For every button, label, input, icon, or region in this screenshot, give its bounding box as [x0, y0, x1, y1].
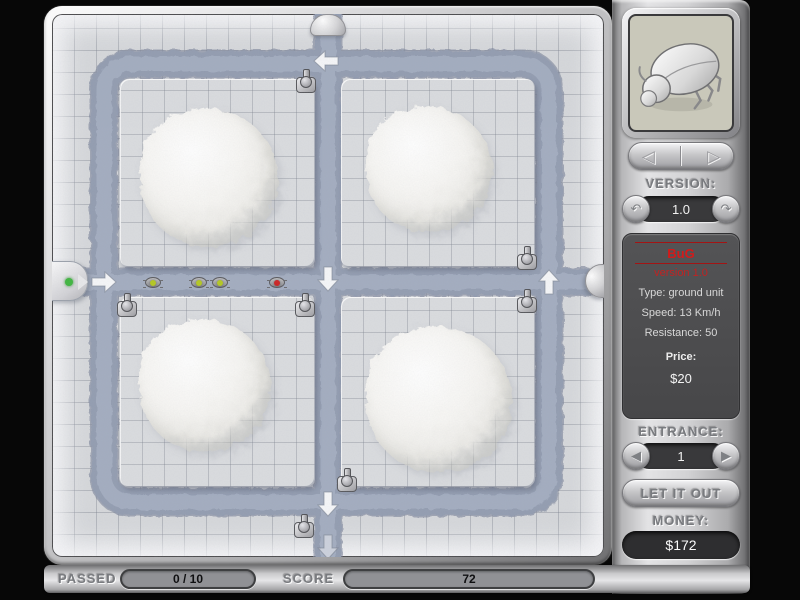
- snow-mound: [139, 319, 271, 451]
- turret[interactable]: [337, 468, 357, 492]
- entrance-label: ENTRANCE:: [612, 424, 750, 439]
- bug-enemy: [212, 277, 228, 288]
- passed-label: PASSED: [58, 571, 117, 586]
- game-board-frame: [44, 6, 612, 565]
- unit-preview-frame: [622, 8, 740, 138]
- bug-status-light: [196, 280, 202, 286]
- turret[interactable]: [517, 246, 537, 270]
- beetle-icon: [628, 14, 734, 132]
- turret[interactable]: [517, 289, 537, 313]
- turret[interactable]: [296, 69, 316, 93]
- version-next-button[interactable]: ↷: [712, 195, 740, 223]
- version-prev-button[interactable]: ↶: [622, 195, 650, 223]
- path-direction-arrow-left: [315, 48, 337, 74]
- path-direction-arrow-down: [317, 491, 339, 517]
- bug-enemy: [191, 277, 207, 288]
- version-label: VERSION:: [612, 176, 750, 191]
- snow-mound: [140, 108, 278, 246]
- passed-counter: 0 / 10: [120, 569, 256, 589]
- entrance-prev-button[interactable]: ◀: [622, 442, 650, 470]
- info-divider: [635, 263, 727, 264]
- entrance-marker: [52, 261, 88, 301]
- exit-dome-marker: [310, 14, 346, 36]
- turret[interactable]: [117, 293, 137, 317]
- path-direction-arrow-down: [317, 534, 339, 557]
- version-selector: 1.0 ↶ ↷: [622, 194, 740, 224]
- entrance-active-light: [65, 278, 73, 286]
- snow-mound: [366, 326, 512, 472]
- money-value: $172: [622, 531, 740, 559]
- path-direction-arrow-up: [538, 269, 560, 295]
- unit-price-label: Price:: [623, 351, 739, 363]
- nav-divider: [680, 146, 681, 166]
- status-bar: PASSED 0 / 10 SCORE 72: [44, 565, 750, 593]
- game-field[interactable]: [52, 14, 604, 557]
- bug-status-light: [150, 280, 156, 286]
- path-direction-arrow-right: [93, 269, 115, 295]
- turret-dome: [521, 253, 533, 265]
- score-label: SCORE: [283, 571, 334, 586]
- bug-status-light: [274, 280, 280, 286]
- turret[interactable]: [295, 293, 315, 317]
- unit-type: Type: ground unit: [623, 287, 739, 299]
- entrance-next-button[interactable]: ▶: [712, 442, 740, 470]
- bug-status-light: [217, 280, 223, 286]
- turret-dome: [300, 76, 312, 88]
- turret[interactable]: [294, 514, 314, 538]
- snow-mound: [366, 106, 492, 232]
- path-direction-arrow-down: [317, 266, 339, 292]
- entrance-selector: 1 ◀ ▶: [622, 441, 740, 471]
- turret-dome: [298, 521, 310, 533]
- unit-nav: ◁ ▷: [628, 142, 734, 170]
- score-counter: 72: [343, 569, 595, 589]
- prev-unit-button[interactable]: ◁: [642, 148, 655, 165]
- unit-resistance: Resistance: 50: [623, 327, 739, 339]
- control-panel: ◁ ▷ VERSION: 1.0 ↶ ↷ BuG version 1.0 Typ…: [612, 0, 750, 594]
- turret-dome: [121, 300, 133, 312]
- unit-speed: Speed: 13 Km/h: [623, 307, 739, 319]
- money-label: MONEY:: [612, 513, 750, 528]
- bug-enemy: [269, 277, 285, 288]
- next-unit-button[interactable]: ▷: [707, 148, 720, 165]
- unit-version: version 1.0: [623, 267, 739, 279]
- unit-name: BuG: [623, 246, 739, 261]
- turret-dome: [299, 300, 311, 312]
- info-divider: [635, 242, 727, 243]
- turret-dome: [521, 296, 533, 308]
- let-it-out-button[interactable]: LET IT OUT: [622, 479, 740, 507]
- bug-enemy: [145, 277, 161, 288]
- turret-dome: [341, 475, 353, 487]
- unit-info-panel: BuG version 1.0 Type: ground unit Speed:…: [622, 233, 740, 419]
- unit-price-value: $20: [623, 371, 739, 386]
